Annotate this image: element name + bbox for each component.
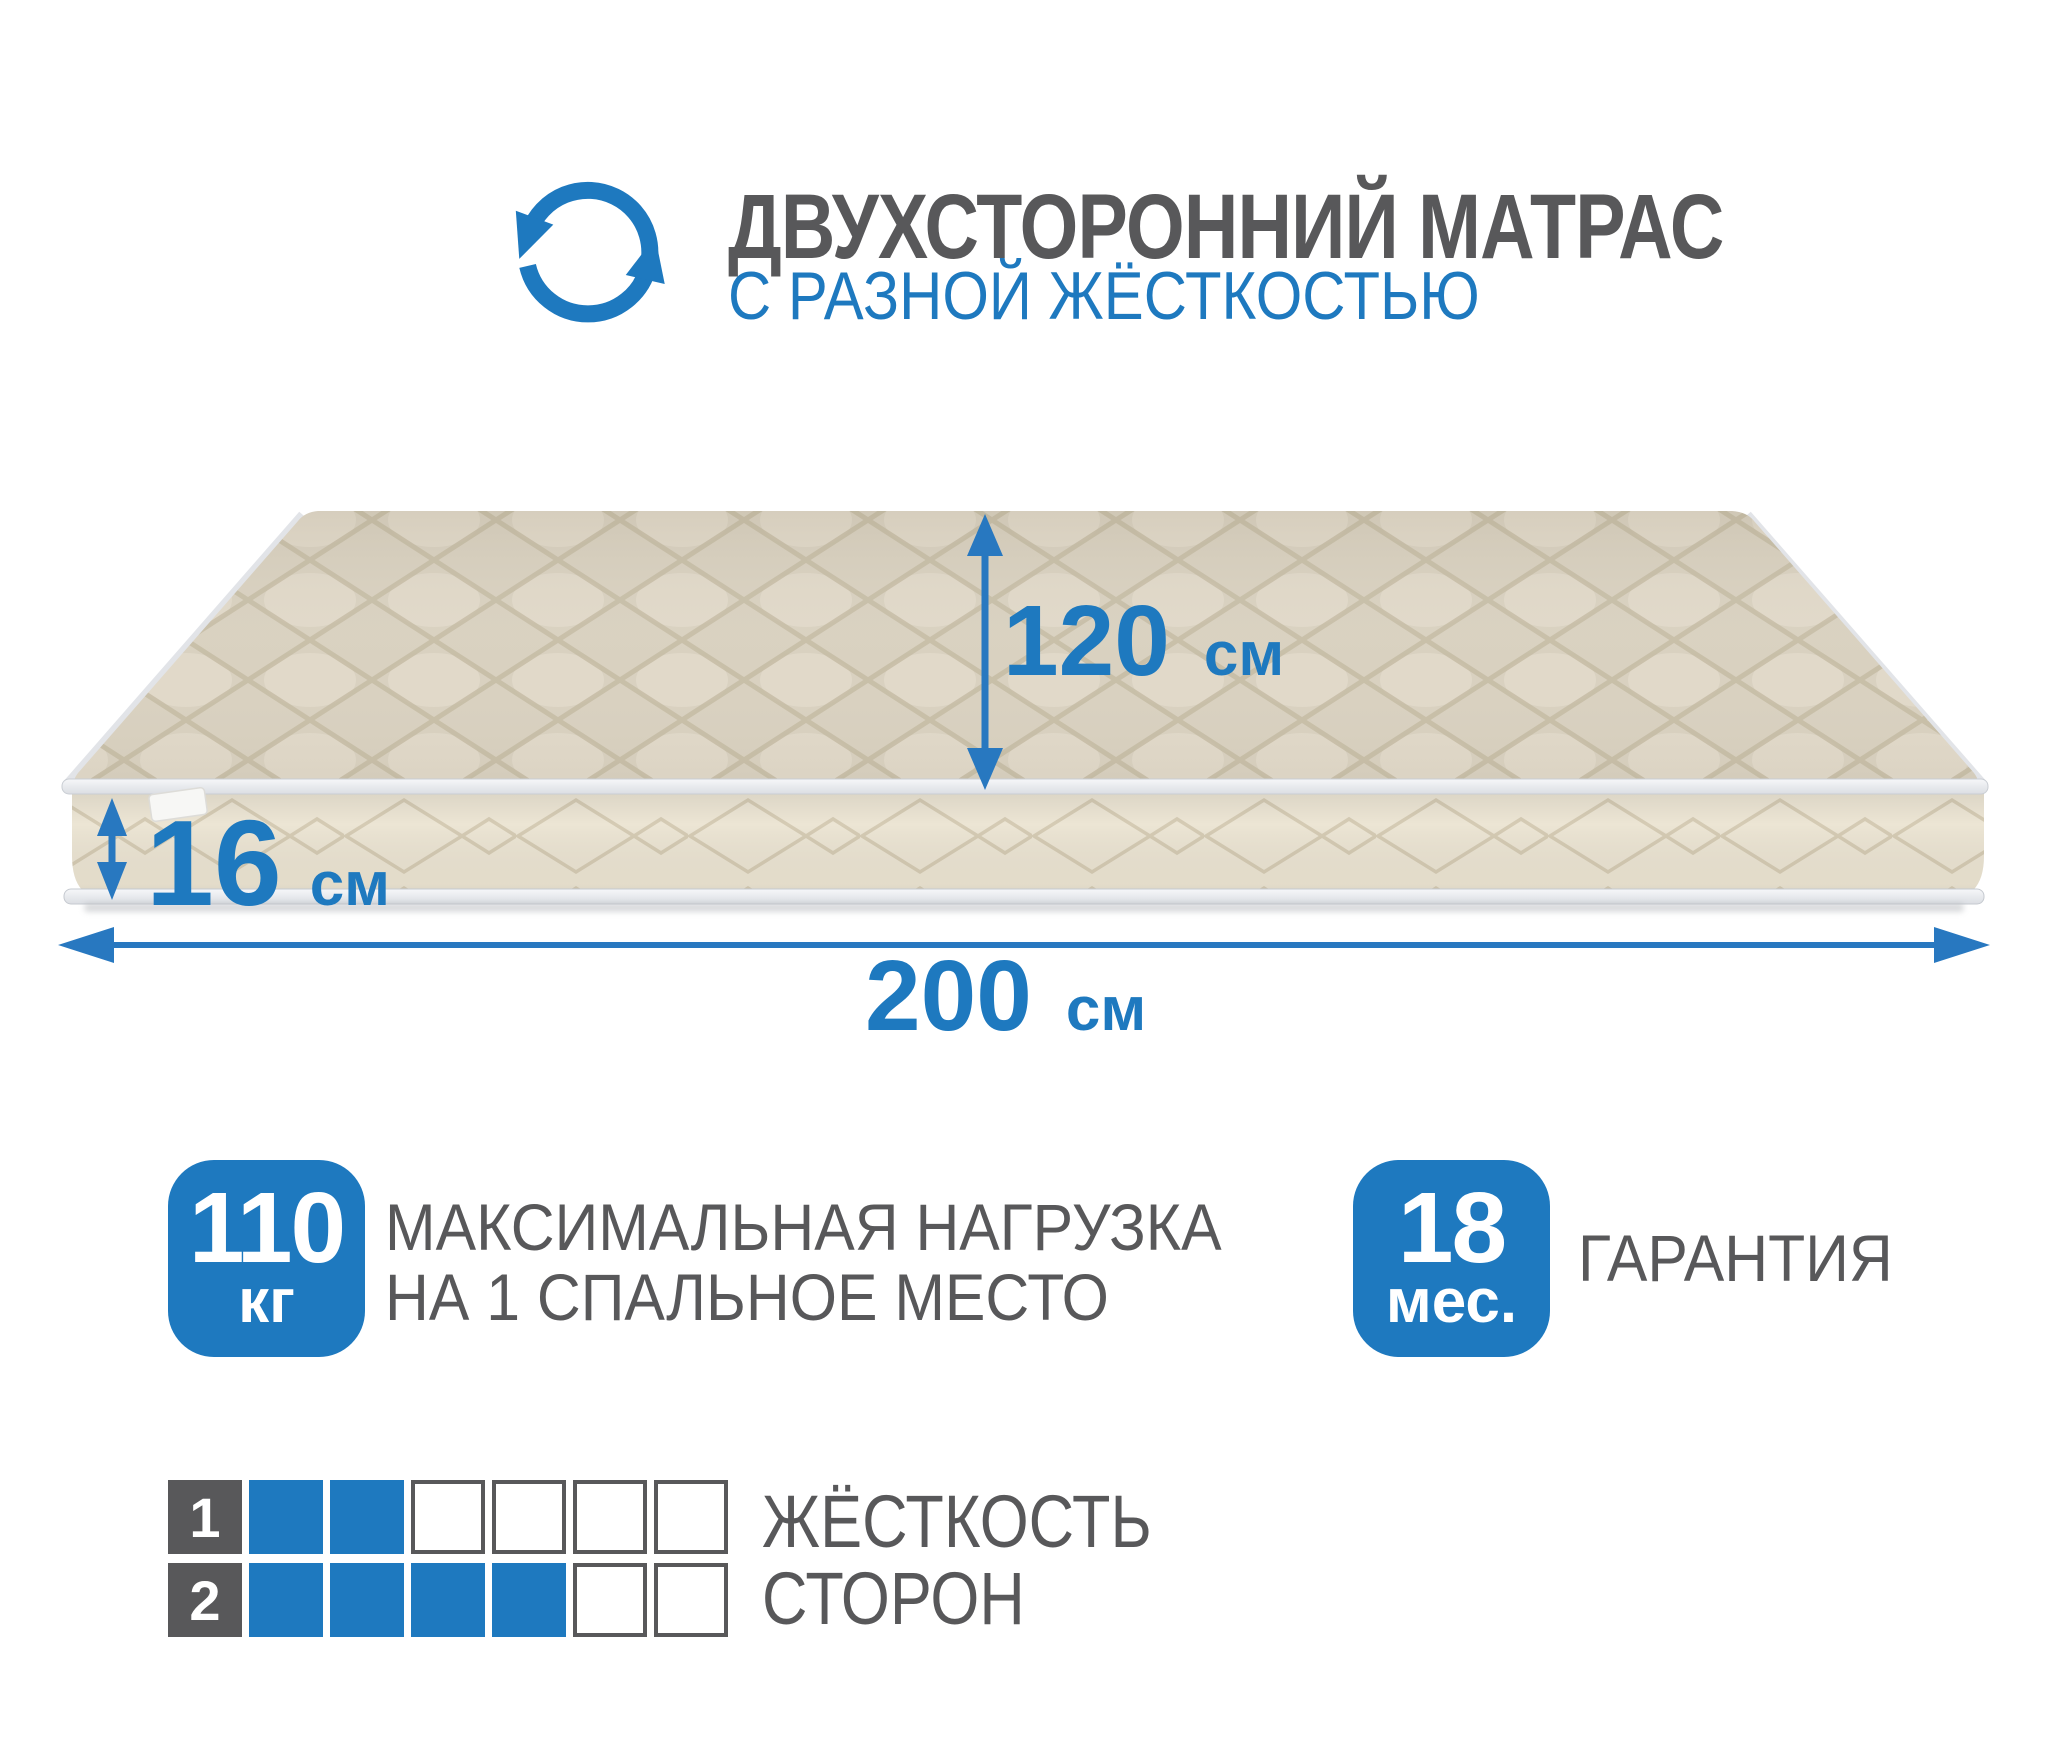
width-unit: см bbox=[1204, 624, 1284, 686]
mattress-top-piping bbox=[62, 779, 1988, 794]
max-load-badge: 110 кг bbox=[168, 1160, 365, 1357]
firmness-label-line1: ЖЁСТКОСТЬ bbox=[762, 1483, 1152, 1560]
firmness-row: 1 bbox=[168, 1480, 728, 1554]
firmness-cell bbox=[411, 1563, 485, 1637]
firmness-cells bbox=[249, 1480, 728, 1554]
max-load-label: МАКСИМАЛЬНАЯ НАГРУЗКА НА 1 СПАЛЬНОЕ МЕСТ… bbox=[385, 1192, 1222, 1332]
firmness-side-number: 2 bbox=[168, 1563, 242, 1637]
firmness-cell bbox=[654, 1563, 728, 1637]
firmness-label-line2: СТОРОН bbox=[762, 1560, 1152, 1637]
length-dimension-label: 200 см bbox=[865, 946, 1146, 1046]
firmness-cell bbox=[492, 1480, 566, 1554]
length-unit: см bbox=[1066, 979, 1146, 1041]
warranty-value: 18 bbox=[1398, 1186, 1505, 1270]
firmness-cell bbox=[654, 1480, 728, 1554]
firmness-cell bbox=[330, 1480, 404, 1554]
firmness-cells bbox=[249, 1563, 728, 1637]
firmness-cell bbox=[492, 1563, 566, 1637]
width-dimension-label: 120 см bbox=[1003, 591, 1284, 691]
width-value: 120 bbox=[1003, 591, 1170, 691]
warranty-label: ГАРАНТИЯ bbox=[1578, 1223, 1893, 1293]
max-load-value: 110 bbox=[189, 1186, 344, 1270]
infographic-canvas: ДВУХСТОРОННИЙ МАТРАС С РАЗНОЙ ЖЁСТКОСТЬЮ bbox=[0, 0, 2048, 1757]
max-load-unit: кг bbox=[238, 1272, 295, 1332]
warranty-label-line1: ГАРАНТИЯ bbox=[1578, 1223, 1893, 1293]
firmness-label: ЖЁСТКОСТЬ СТОРОН bbox=[762, 1483, 1152, 1637]
firmness-side-number: 1 bbox=[168, 1480, 242, 1554]
thickness-value: 16 bbox=[146, 802, 282, 924]
firmness-cell bbox=[573, 1480, 647, 1554]
firmness-row: 2 bbox=[168, 1563, 728, 1637]
firmness-cell bbox=[249, 1480, 323, 1554]
firmness-cell bbox=[411, 1480, 485, 1554]
length-value: 200 bbox=[865, 946, 1032, 1046]
firmness-cell bbox=[249, 1563, 323, 1637]
firmness-cell bbox=[330, 1563, 404, 1637]
max-load-label-line2: НА 1 СПАЛЬНОЕ МЕСТО bbox=[385, 1262, 1222, 1332]
warranty-unit: мес. bbox=[1386, 1272, 1517, 1332]
thickness-dimension-label: 16 см bbox=[146, 802, 390, 924]
firmness-cell bbox=[573, 1563, 647, 1637]
warranty-badge: 18 мес. bbox=[1353, 1160, 1550, 1357]
thickness-unit: см bbox=[310, 854, 390, 916]
max-load-label-line1: МАКСИМАЛЬНАЯ НАГРУЗКА bbox=[385, 1192, 1222, 1262]
